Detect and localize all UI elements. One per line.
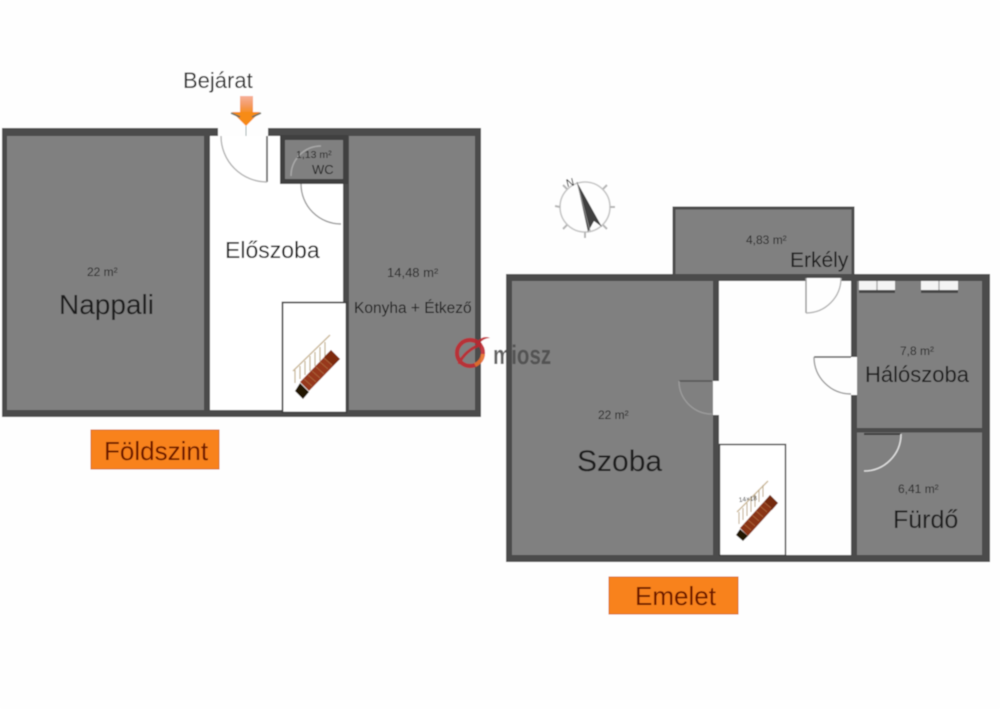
svg-text:6,41 m²: 6,41 m² <box>898 482 939 496</box>
svg-text:Konyha + Étkező: Konyha + Étkező <box>354 300 472 317</box>
svg-text:Szoba: Szoba <box>577 445 662 478</box>
svg-text:1,13 m²: 1,13 m² <box>296 149 332 161</box>
svg-text:Emelet: Emelet <box>635 581 717 611</box>
svg-text:miosz: miosz <box>493 340 551 370</box>
svg-text:Erkély: Erkély <box>790 249 849 272</box>
svg-text:4,83 m²: 4,83 m² <box>746 233 787 247</box>
svg-text:7,8 m²: 7,8 m² <box>900 344 934 358</box>
svg-text:Fürdő: Fürdő <box>893 506 958 534</box>
svg-text:Előszoba: Előszoba <box>225 237 320 263</box>
svg-text:Földszint: Földszint <box>104 436 209 466</box>
svg-text:WC: WC <box>312 162 334 177</box>
svg-text:Bejárat: Bejárat <box>183 68 253 93</box>
svg-text:14,48 m²: 14,48 m² <box>387 265 439 280</box>
svg-text:Nappali: Nappali <box>59 289 154 320</box>
svg-text:22 m²: 22 m² <box>598 408 629 422</box>
svg-text:22 m²: 22 m² <box>87 265 118 279</box>
svg-text:Hálószoba: Hálószoba <box>865 362 970 387</box>
